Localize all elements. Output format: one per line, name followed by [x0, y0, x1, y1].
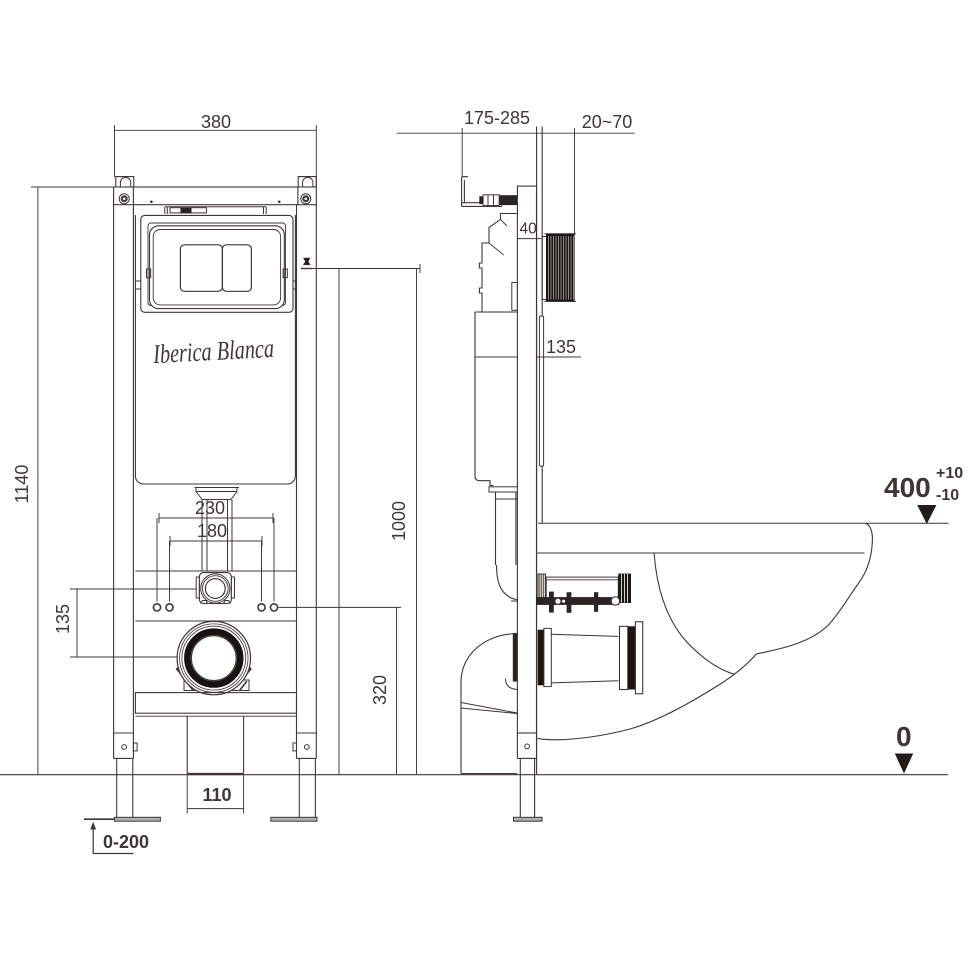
svg-text:1000: 1000 [389, 501, 409, 541]
svg-text:1140: 1140 [12, 465, 32, 504]
svg-text:40: 40 [520, 221, 538, 238]
svg-text:380: 380 [201, 112, 231, 132]
svg-text:20~70: 20~70 [582, 112, 633, 132]
svg-text:+10: +10 [936, 465, 963, 482]
svg-text:135: 135 [546, 337, 576, 357]
svg-text:Iberica Blanca: Iberica Blanca [152, 333, 275, 369]
svg-text:400: 400 [884, 472, 931, 503]
svg-text:110: 110 [202, 785, 231, 805]
svg-text:180: 180 [197, 521, 227, 541]
svg-text:0-200: 0-200 [103, 832, 149, 852]
svg-text:0: 0 [896, 721, 912, 752]
svg-text:175-285: 175-285 [464, 108, 530, 128]
svg-text:320: 320 [370, 675, 390, 705]
svg-text:135: 135 [53, 604, 73, 634]
svg-text:230: 230 [195, 498, 225, 518]
svg-text:-10: -10 [936, 487, 959, 504]
